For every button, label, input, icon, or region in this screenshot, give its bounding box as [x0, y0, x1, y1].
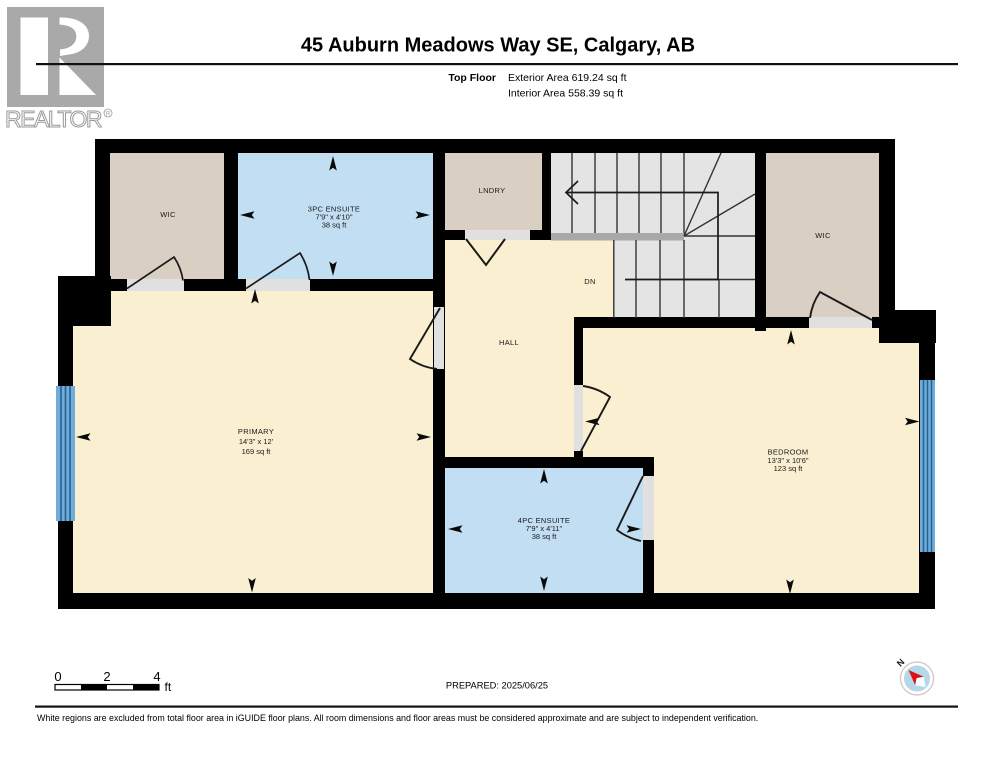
svg-text:DN: DN — [584, 277, 595, 286]
svg-text:HALL: HALL — [499, 338, 519, 347]
svg-text:123 sq ft: 123 sq ft — [774, 464, 804, 473]
svg-text:38 sq ft: 38 sq ft — [532, 532, 558, 541]
svg-text:4: 4 — [153, 669, 160, 684]
svg-text:ft: ft — [165, 680, 172, 694]
svg-text:Exterior Area 619.24 sq ft: Exterior Area 619.24 sq ft — [508, 72, 627, 84]
svg-text:WIC: WIC — [160, 210, 176, 219]
svg-text:38 sq ft: 38 sq ft — [322, 221, 348, 230]
svg-text:14'3" x 12': 14'3" x 12' — [239, 437, 274, 446]
svg-text:PREPARED: 2025/06/25: PREPARED: 2025/06/25 — [446, 681, 548, 691]
svg-text:2: 2 — [103, 669, 110, 684]
svg-text:WIC: WIC — [815, 231, 831, 240]
svg-text:Interior Area 558.39 sq ft: Interior Area 558.39 sq ft — [508, 88, 623, 100]
svg-text:Top Floor: Top Floor — [448, 72, 496, 84]
svg-text:R: R — [106, 112, 111, 118]
svg-text:45 Auburn Meadows Way SE, Calg: 45 Auburn Meadows Way SE, Calgary, AB — [301, 35, 695, 57]
svg-text:REALTOR: REALTOR — [5, 106, 103, 132]
svg-text:169 sq ft: 169 sq ft — [242, 447, 272, 456]
svg-text:White regions are excluded fro: White regions are excluded from total fl… — [37, 713, 758, 723]
svg-text:LNDRY: LNDRY — [479, 186, 506, 195]
svg-text:PRIMARY: PRIMARY — [238, 427, 274, 436]
svg-text:0: 0 — [54, 669, 61, 684]
